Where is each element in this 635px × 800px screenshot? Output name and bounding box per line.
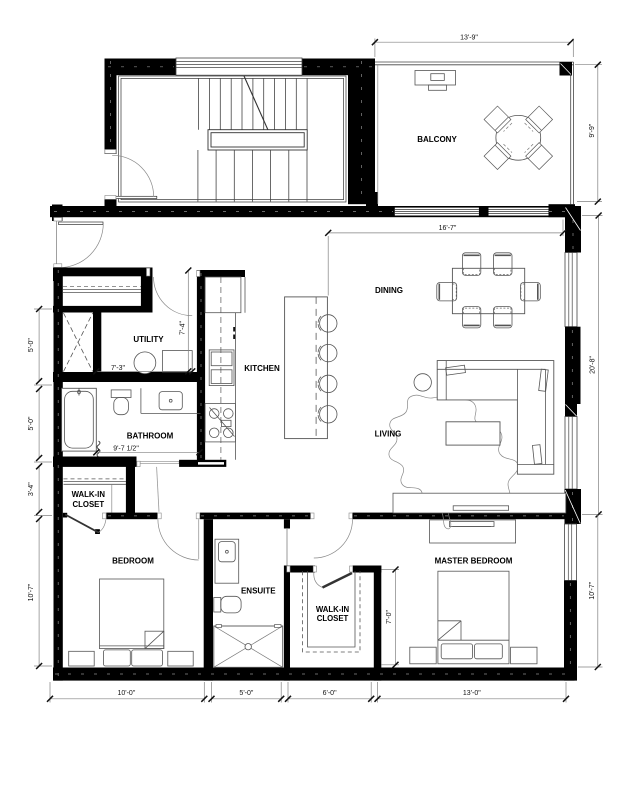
svg-text:13'-9": 13'-9" [460,35,478,42]
svg-text:5'-0": 5'-0" [28,416,35,430]
svg-text:20'-8": 20'-8" [589,355,596,373]
svg-text:6'-0": 6'-0" [323,690,337,697]
svg-text:DINING: DINING [375,286,403,295]
svg-text:WALK-IN: WALK-IN [72,490,106,499]
svg-text:3'-4": 3'-4" [28,482,35,496]
svg-text:LIVING: LIVING [375,430,402,439]
svg-text:13'-0": 13'-0" [463,690,481,697]
svg-text:UTILITY: UTILITY [133,335,164,344]
svg-text:9'-7 1/2": 9'-7 1/2" [113,446,139,453]
svg-text:BALCONY: BALCONY [417,135,457,144]
svg-text:9'-9": 9'-9" [589,123,596,137]
svg-text:5'-0": 5'-0" [239,690,253,697]
svg-text:10'-7": 10'-7" [28,583,35,601]
svg-text:10'-7": 10'-7" [589,581,596,599]
svg-text:BEDROOM: BEDROOM [112,557,154,566]
svg-text:WALK-IN: WALK-IN [316,605,350,614]
svg-text:KITCHEN: KITCHEN [244,364,280,373]
svg-text:10'-0": 10'-0" [117,690,135,697]
svg-text:16'-7": 16'-7" [439,225,457,232]
svg-text:BATHROOM: BATHROOM [127,431,174,440]
svg-text:MASTER BEDROOM: MASTER BEDROOM [435,556,513,565]
svg-text:7'-3": 7'-3" [111,365,125,372]
svg-text:CLOSET: CLOSET [317,614,349,623]
svg-text:7'-4": 7'-4" [180,321,187,335]
svg-text:7'-0": 7'-0" [386,610,393,624]
svg-text:CLOSET: CLOSET [72,500,104,509]
svg-text:ENSUITE: ENSUITE [241,586,276,595]
svg-text:5'-0": 5'-0" [28,338,35,352]
